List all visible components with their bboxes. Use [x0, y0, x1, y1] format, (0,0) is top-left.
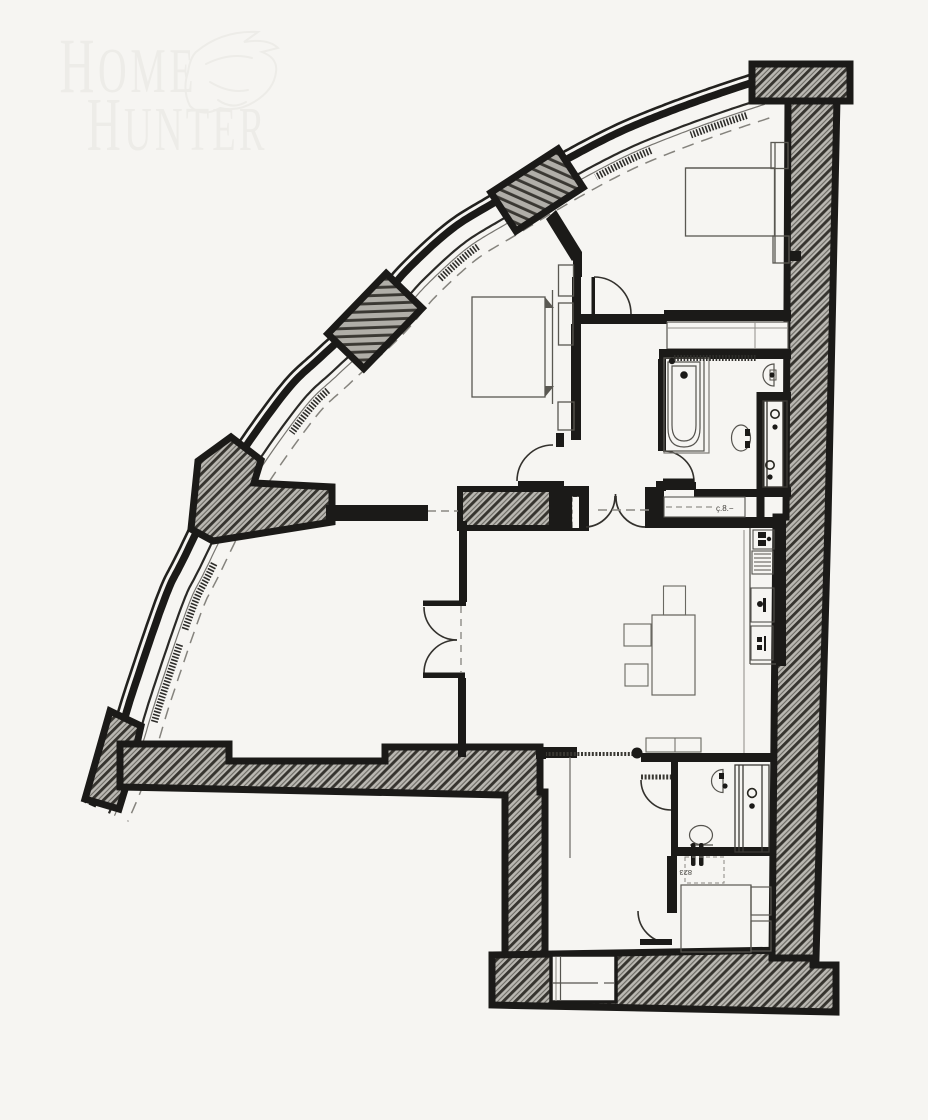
- svg-text:H: H: [87, 83, 121, 167]
- svg-text:ç.8.−: ç.8.−: [716, 504, 734, 513]
- svg-text:823: 823: [679, 868, 692, 877]
